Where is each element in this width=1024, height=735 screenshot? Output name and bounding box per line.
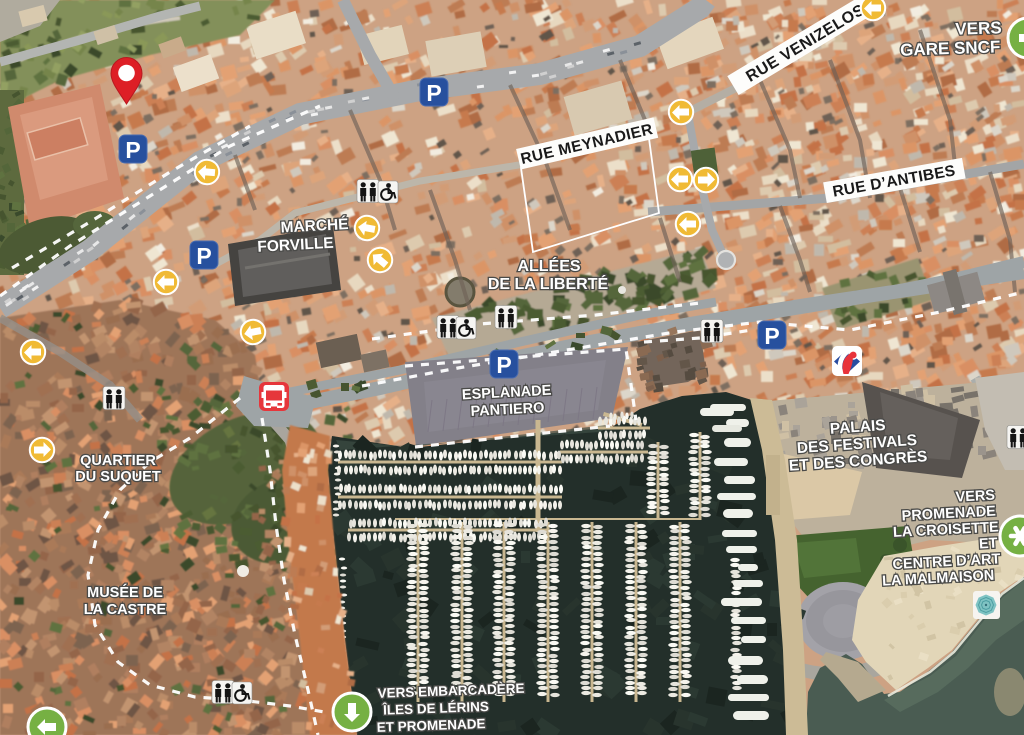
svg-text:P: P xyxy=(764,323,779,349)
svg-text:DE LA LIBERTÉ: DE LA LIBERTÉ xyxy=(488,274,609,293)
svg-text:VERS: VERS xyxy=(955,18,1002,39)
svg-text:P: P xyxy=(496,352,511,378)
svg-text:P: P xyxy=(426,80,441,106)
svg-text:ALLÉES: ALLÉES xyxy=(517,256,580,275)
svg-text:MARCHÉ: MARCHÉ xyxy=(280,216,349,237)
svg-text:P: P xyxy=(125,137,140,163)
svg-text:GARE SNCF: GARE SNCF xyxy=(900,37,1001,59)
svg-text:QUARTIER: QUARTIER xyxy=(80,453,156,469)
svg-text:MUSÉE DE: MUSÉE DE xyxy=(87,584,163,601)
svg-text:DU SUQUET: DU SUQUET xyxy=(75,469,161,485)
svg-text:ET: ET xyxy=(979,535,998,552)
svg-text:LA CASTRE: LA CASTRE xyxy=(84,602,167,618)
svg-text:P: P xyxy=(196,243,211,269)
